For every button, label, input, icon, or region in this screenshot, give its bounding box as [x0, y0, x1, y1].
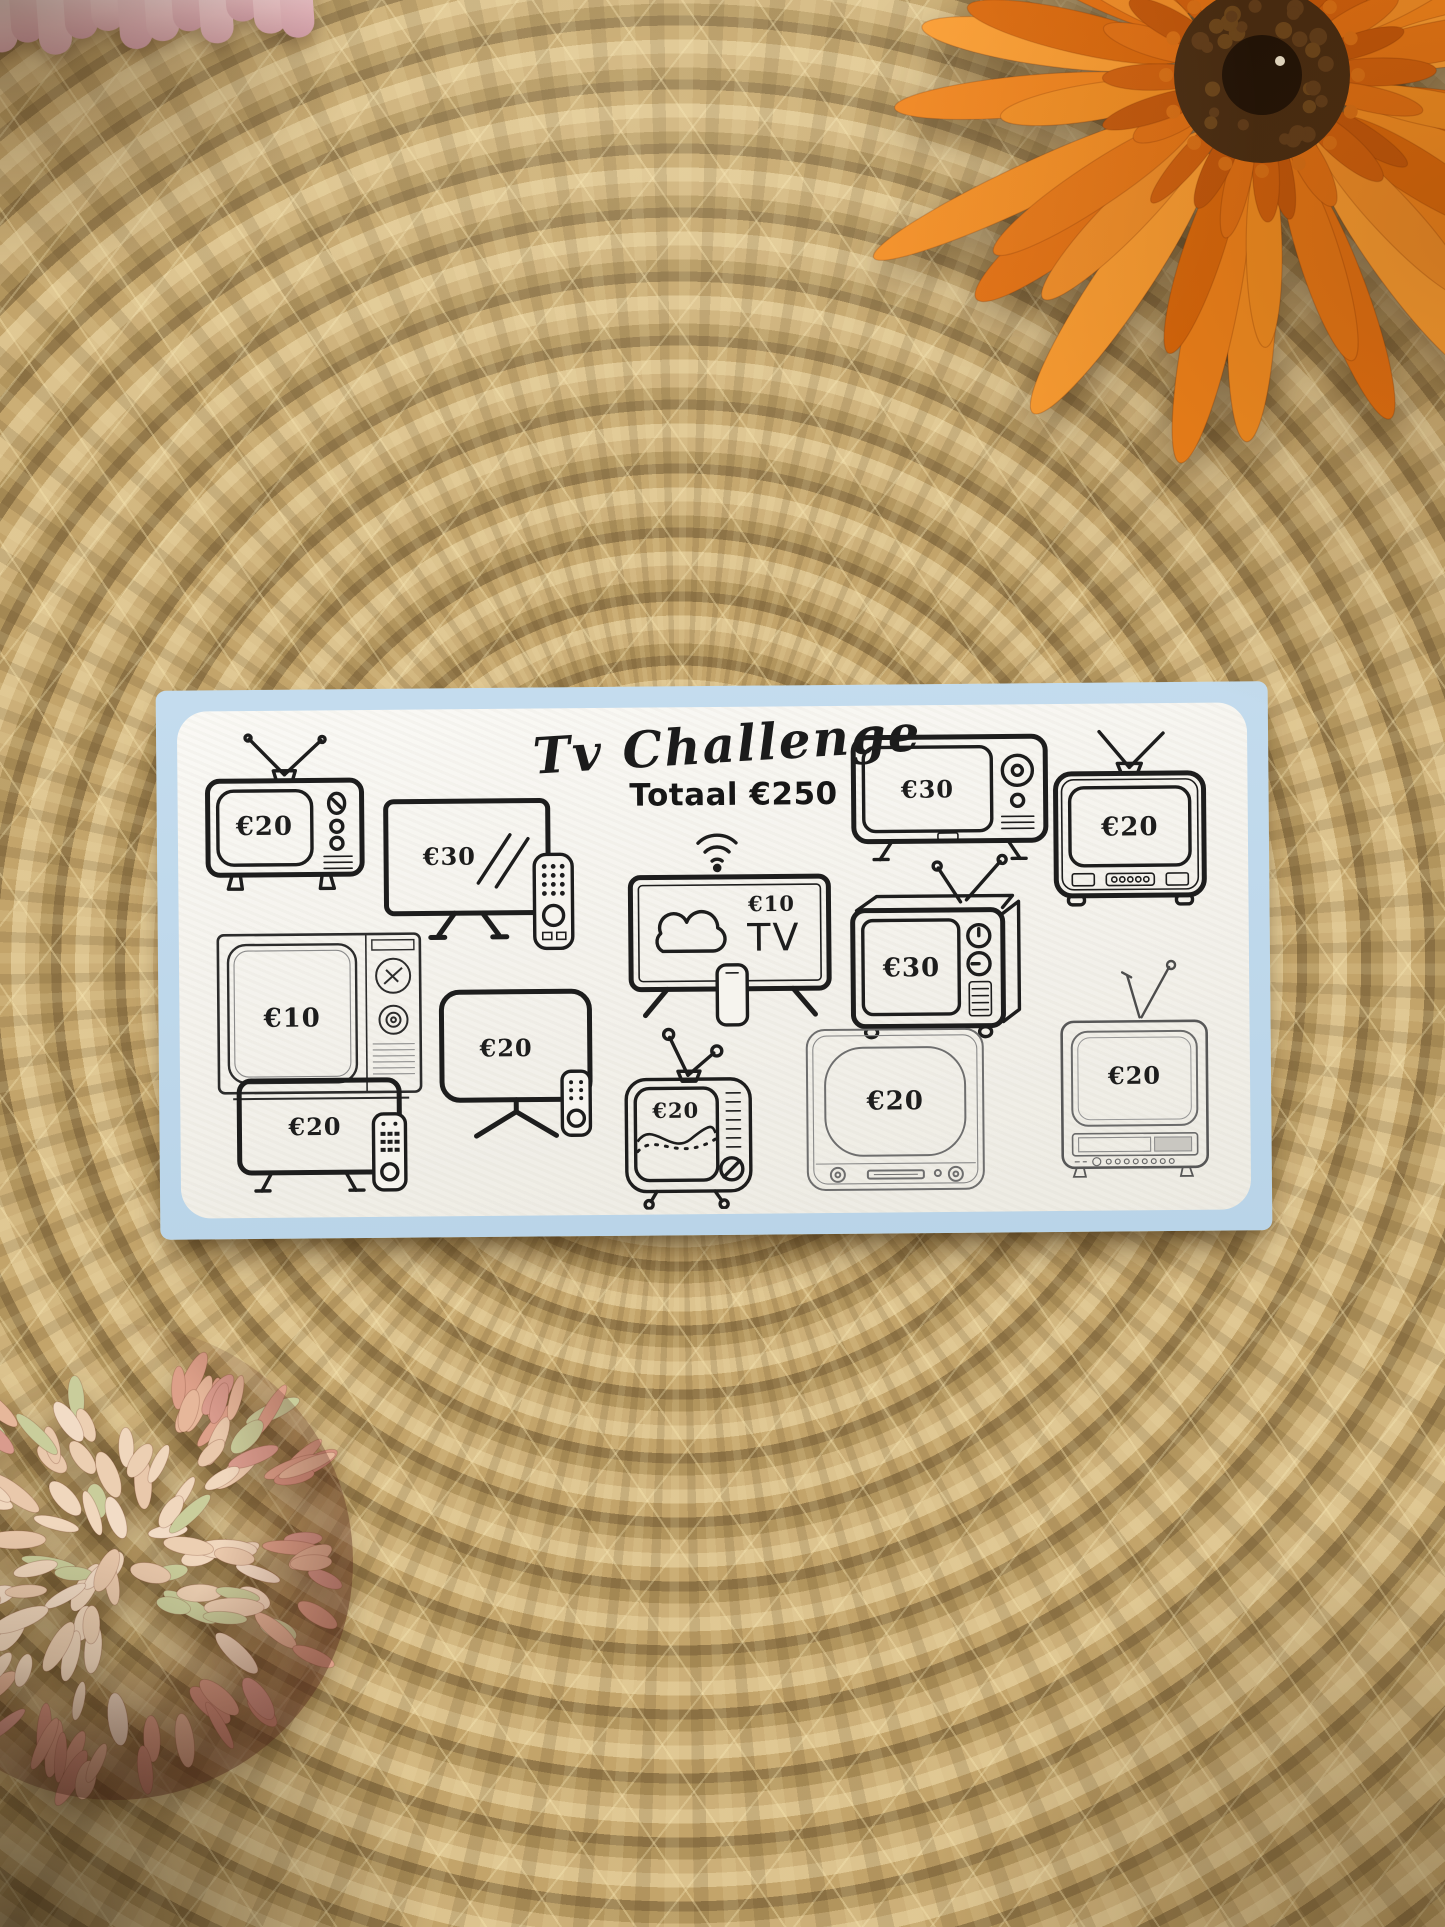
tv-amount-label: €20: [236, 812, 294, 842]
screen-glare: [478, 835, 528, 887]
tuning-dial: [376, 959, 410, 993]
tv-amount-label: €30: [423, 842, 476, 871]
tv-amount-label: €30: [901, 774, 954, 803]
tv-amount-label: €20: [479, 1033, 532, 1062]
dial-knob: [721, 1158, 743, 1180]
tv-fifties-console: €20: [803, 1025, 988, 1199]
panel-divider: [816, 1163, 976, 1164]
brand-plate: [372, 940, 414, 950]
tv-challenge-savings-card: Tv Challenge Totaal €250: [156, 681, 1273, 1240]
orange-gerbera-flower: [862, 0, 1445, 475]
speaker-grille: [373, 1044, 415, 1074]
phone-icon: [717, 965, 748, 1025]
flower-petals: [865, 0, 1445, 468]
tv-amount-label: €20: [288, 1112, 341, 1141]
tv-screen-text: TV: [747, 915, 801, 959]
tv-smart-streaming: €10 TV: [624, 818, 836, 1032]
pink-pom-flower: [0, 1300, 380, 1830]
volume-knob: [379, 1006, 407, 1034]
tv-wave-screen: €20: [618, 1023, 760, 1210]
tv-stand: [431, 913, 507, 938]
tv-retro-antenna: €20: [199, 728, 370, 901]
tv-retro-knob: €30: [849, 722, 1050, 864]
antenna-icon: [1099, 731, 1163, 774]
tv-amount-label: €20: [1101, 812, 1159, 842]
speaker-vents: [1002, 816, 1034, 828]
vcr-slot: [1073, 1133, 1198, 1156]
wave-pattern: [637, 1127, 715, 1152]
tv-stand: [476, 1099, 556, 1136]
remote-control: [373, 1114, 406, 1190]
antenna-icon: [1122, 961, 1175, 1017]
card-total-subtitle: Totaal €250: [629, 776, 837, 814]
control-knobs: [329, 793, 345, 849]
tv-vcr-combo: €20: [1055, 959, 1214, 1184]
tick-vents: [726, 1093, 740, 1147]
control-knobs: [1002, 755, 1032, 806]
control-panel: [831, 1167, 963, 1182]
tv-portable-antenna: €20: [1047, 723, 1213, 920]
card-paper: Tv Challenge Totaal €250: [177, 702, 1251, 1218]
antenna-icon: [664, 1029, 722, 1082]
speaker-vents: [324, 856, 352, 868]
cloud-icon: [657, 911, 725, 951]
flower-shading: [0, 1324, 353, 1800]
tv-amount-label: €10: [263, 1003, 321, 1033]
tv-amount-label: €20: [1108, 1061, 1161, 1090]
slider-grille: [969, 982, 991, 1016]
tv-amount-label: €20: [652, 1098, 699, 1123]
yarn-loop: [278, 0, 315, 39]
front-panel: [1072, 873, 1188, 886]
tv-amount-label: €20: [866, 1086, 924, 1116]
antenna-icon: [245, 734, 325, 781]
wifi-icon: [698, 835, 736, 871]
panel-divider: [366, 934, 367, 1092]
remote-control: [534, 854, 573, 948]
remote-control: [562, 1071, 591, 1135]
tv-feet: [645, 1191, 728, 1209]
tv-lowboard-remote: €20: [235, 1074, 421, 1198]
tv-retro-box: €30: [842, 849, 1034, 1051]
tv-monitor-remote: €20: [435, 985, 596, 1144]
control-knobs: [968, 925, 990, 975]
tv-amount-label: €30: [883, 953, 941, 983]
tv-amount-label: €10: [748, 891, 795, 916]
button-row: [1075, 1157, 1174, 1166]
photograph: Tv Challenge Totaal €250: [0, 0, 1445, 1927]
